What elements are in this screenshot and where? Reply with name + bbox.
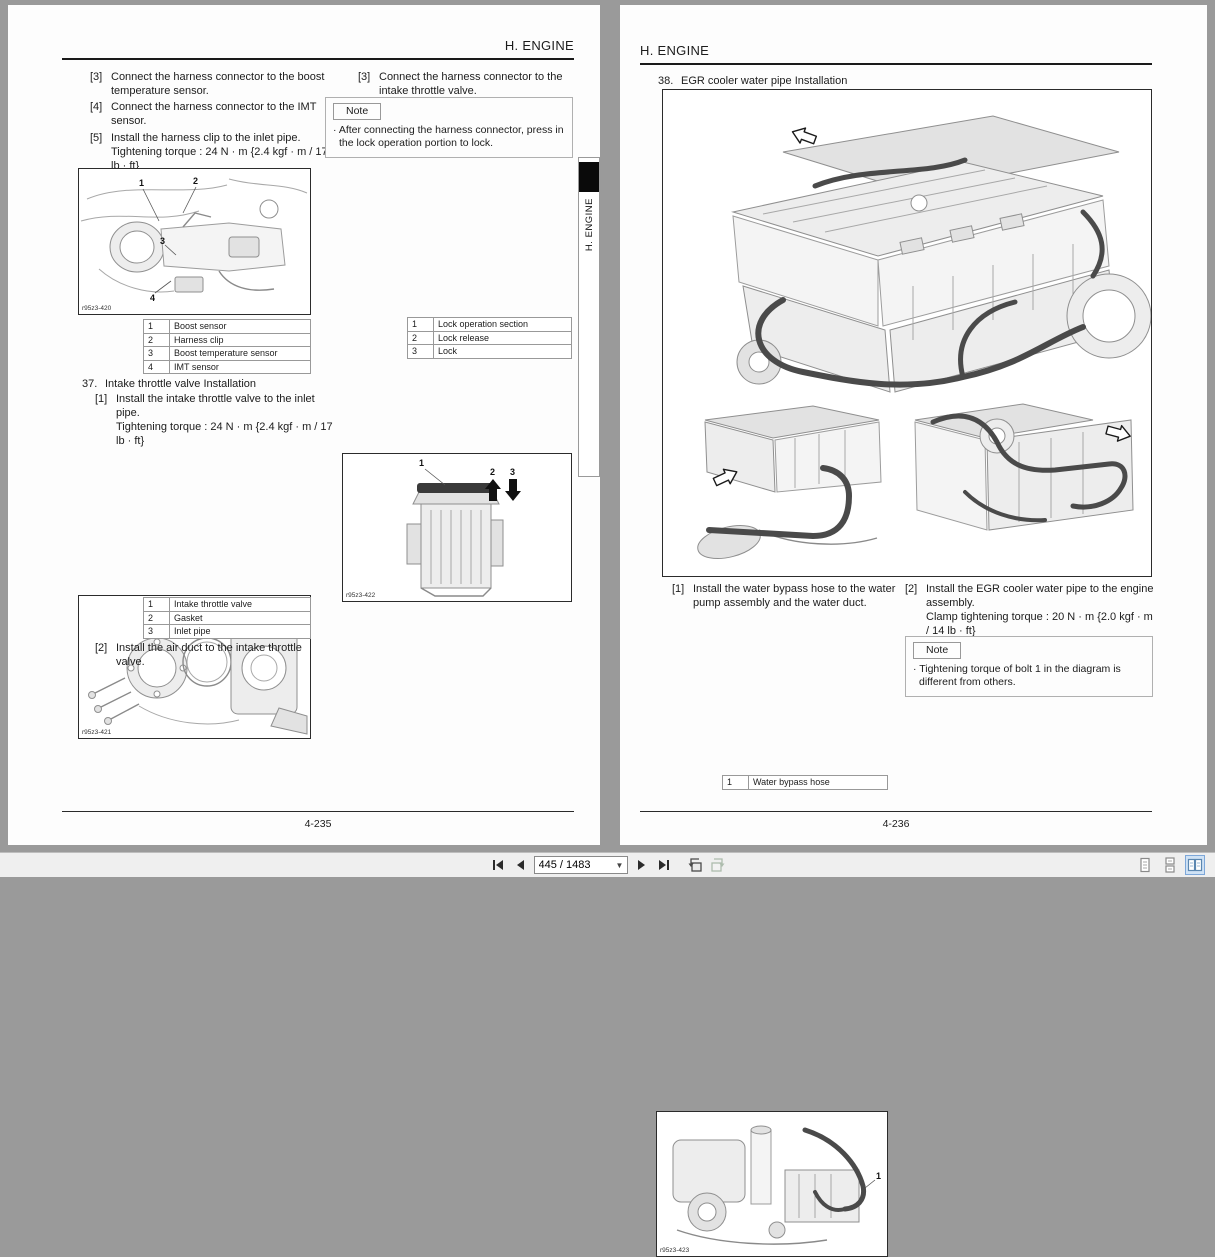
callout-2: 2 xyxy=(193,176,198,186)
page-right: H. ENGINE 38. EGR cooler water pipe Inst… xyxy=(620,5,1207,845)
step-text: Install the air duct to the intake throt… xyxy=(116,642,333,669)
continuous-view-button[interactable] xyxy=(1160,855,1180,875)
previous-view-icon xyxy=(687,857,703,873)
page-number-combo: ▼ xyxy=(534,856,628,874)
step-text: Connect the harness connector to the boo… xyxy=(111,71,333,98)
next-page-icon xyxy=(634,858,648,872)
continuous-view-icon xyxy=(1162,857,1178,873)
table-row: 3Inlet pipe xyxy=(144,625,311,639)
step-text: Install the EGR cooler water pipe to the… xyxy=(926,583,1153,609)
page-left: H. ENGINE [3] Connect the harness connec… xyxy=(8,5,600,845)
step-item: [4] Connect the harness connector to the… xyxy=(90,101,333,128)
legend-table-4: 1Water bypass hose xyxy=(722,775,888,790)
figure-id-label: r95z3-423 xyxy=(660,1247,689,1254)
callout-1: 1 xyxy=(876,1171,881,1181)
figure-egr-cooler-pipe xyxy=(662,89,1152,577)
legend-table-1: 1Boost sensor 2Harness clip 3Boost tempe… xyxy=(143,319,311,374)
table-row: 2Gasket xyxy=(144,611,311,625)
next-page-button[interactable] xyxy=(631,855,651,875)
callout-3: 3 xyxy=(510,467,515,477)
step-text: Install the harness clip to the inlet pi… xyxy=(111,132,301,144)
column-b-steps: [2] Install the EGR cooler water pipe to… xyxy=(905,583,1155,642)
page-header-text: H. ENGINE xyxy=(640,43,709,58)
section-37-steps: [1] Install the intake throttle valve to… xyxy=(95,393,333,452)
single-page-view-button[interactable] xyxy=(1135,855,1155,875)
note-box: Note · After connecting the harness conn… xyxy=(325,97,573,158)
engine-illustration: 1 2 3 xyxy=(343,454,571,601)
figure-water-bypass-hose: 1 r95z3-423 xyxy=(656,1111,888,1257)
legend-table-2: 1Intake throttle valve 2Gasket 3Inlet pi… xyxy=(143,597,311,639)
callout-2: 2 xyxy=(490,467,495,477)
column-a-steps: [1] Install the water bypass hose to the… xyxy=(672,583,904,613)
callout-3: 3 xyxy=(160,236,165,246)
table-row: 2Lock release xyxy=(408,331,572,345)
callout-1: 1 xyxy=(419,458,424,468)
engine-illustration xyxy=(663,90,1151,576)
callout-4: 4 xyxy=(150,293,155,303)
step-marker: [3] xyxy=(90,71,107,98)
previous-page-icon xyxy=(514,858,528,872)
note-box: Note · Tightening torque of bolt 1 in th… xyxy=(905,636,1153,697)
step-item: [3] Connect the harness connector to the… xyxy=(90,71,333,98)
document-canvas: H. ENGINE [3] Connect the harness connec… xyxy=(0,0,1215,852)
page-number: 4-236 xyxy=(883,818,910,830)
torque-spec: Clamp tightening torque : 20 N · m {2.0 … xyxy=(926,611,1155,638)
engine-illustration: 1 xyxy=(657,1112,887,1256)
step-text: Connect the harness connector to the IMT… xyxy=(111,101,333,128)
page-number: 4-235 xyxy=(305,818,332,830)
page-header: H. ENGINE xyxy=(640,43,1152,65)
facing-pages-view-button[interactable] xyxy=(1185,855,1205,875)
table-row: 1Boost sensor xyxy=(144,320,311,334)
column-1-steps: [3] Connect the harness connector to the… xyxy=(90,71,333,176)
step-item: [1] Install the intake throttle valve to… xyxy=(95,393,333,449)
first-page-button[interactable] xyxy=(488,855,508,875)
step-item: [3] Connect the harness connector to the… xyxy=(358,71,576,98)
next-view-button[interactable] xyxy=(708,855,728,875)
table-row: 4IMT sensor xyxy=(144,360,311,374)
previous-page-button[interactable] xyxy=(511,855,531,875)
section-number: 37. xyxy=(82,378,102,392)
step-2-air-duct: [2] Install the air duct to the intake t… xyxy=(95,642,333,672)
note-text: · Tightening torque of bolt 1 in the dia… xyxy=(906,662,1152,696)
page-header: H. ENGINE xyxy=(62,38,574,60)
step-item: [1] Install the water bypass hose to the… xyxy=(672,583,904,610)
facing-pages-view-icon xyxy=(1187,857,1203,873)
next-view-icon xyxy=(710,857,726,873)
page-footer: 4-236 xyxy=(640,811,1152,830)
figure-connector-lock: 1 2 3 r95z3-422 xyxy=(342,453,572,602)
torque-spec: Tightening torque : 24 N · m {2.4 kgf · … xyxy=(116,421,333,448)
table-row: 1Water bypass hose xyxy=(723,776,888,790)
step-text: Install the water bypass hose to the wat… xyxy=(693,583,904,610)
section-heading-37: 37. Intake throttle valve Installation xyxy=(82,378,332,392)
step-marker: [1] xyxy=(672,583,689,610)
callout-1: 1 xyxy=(139,178,144,188)
chapter-thumb-mark xyxy=(579,162,599,192)
step-item: [2] Install the EGR cooler water pipe to… xyxy=(905,583,1155,639)
step-marker: [4] xyxy=(90,101,107,128)
page-number-input[interactable] xyxy=(535,859,613,871)
page-dropdown-caret-icon[interactable]: ▼ xyxy=(613,861,627,870)
unlock-direction-down-arrow xyxy=(505,479,521,501)
section-title: EGR cooler water pipe Installation xyxy=(681,75,847,89)
table-row: 2Harness clip xyxy=(144,333,311,347)
figure-id-label: r95z3-420 xyxy=(82,305,111,312)
page-header-text: H. ENGINE xyxy=(505,38,574,53)
chapter-tab-label: H. ENGINE xyxy=(584,198,595,251)
step-text: Connect the harness connector to the int… xyxy=(379,71,576,98)
step-marker: [1] xyxy=(95,393,112,449)
section-heading-38: 38. EGR cooler water pipe Installation xyxy=(658,75,1058,89)
section-number: 38. xyxy=(658,75,678,89)
last-page-button[interactable] xyxy=(654,855,674,875)
step-text: Install the intake throttle valve to the… xyxy=(116,393,315,419)
note-label: Note xyxy=(333,103,381,120)
step-marker: [2] xyxy=(905,583,922,639)
last-page-icon xyxy=(657,858,671,872)
table-row: 1Intake throttle valve xyxy=(144,598,311,612)
note-text: · After connecting the harness connector… xyxy=(326,123,572,157)
step-marker: [3] xyxy=(358,71,375,98)
table-row: 3Boost temperature sensor xyxy=(144,347,311,361)
single-page-view-icon xyxy=(1137,857,1153,873)
page-footer: 4-235 xyxy=(62,811,574,830)
first-page-icon xyxy=(491,858,505,872)
figure-id-label: r95z3-421 xyxy=(82,729,111,736)
legend-table-3: 1Lock operation section 2Lock release 3L… xyxy=(407,317,572,359)
direction-arrow xyxy=(790,124,818,147)
section-title: Intake throttle valve Installation xyxy=(105,378,256,392)
previous-view-button[interactable] xyxy=(685,855,705,875)
table-row: 1Lock operation section xyxy=(408,318,572,332)
step-marker: [2] xyxy=(95,642,112,669)
figure-id-label: r95z3-422 xyxy=(346,592,375,599)
viewer-toolbar: ▼ xyxy=(0,852,1215,877)
engine-illustration: 1 2 3 4 xyxy=(79,169,310,314)
step-item: [2] Install the air duct to the intake t… xyxy=(95,642,333,669)
note-label: Note xyxy=(913,642,961,659)
chapter-tab-strip: H. ENGINE xyxy=(578,157,600,477)
figure-harness-clip: 1 2 3 4 r95z3-420 xyxy=(78,168,311,315)
table-row: 3Lock xyxy=(408,345,572,359)
